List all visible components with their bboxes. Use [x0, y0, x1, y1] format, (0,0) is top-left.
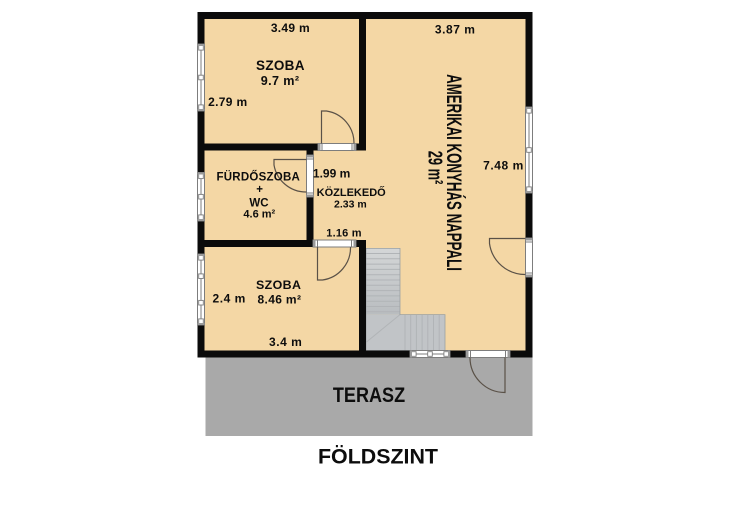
svg-text:3.4 m: 3.4 m — [269, 335, 302, 349]
svg-text:1.16 m: 1.16 m — [326, 227, 361, 239]
svg-text:2.4 m: 2.4 m — [212, 292, 245, 306]
svg-text:3.49 m: 3.49 m — [271, 21, 310, 35]
svg-text:KÖZLEKEDŐ: KÖZLEKEDŐ — [317, 186, 387, 199]
svg-text:4.6 m²: 4.6 m² — [243, 208, 275, 220]
svg-text:2.33 m: 2.33 m — [334, 198, 367, 210]
svg-text:8.46 m²: 8.46 m² — [257, 292, 301, 306]
svg-text:2.79 m: 2.79 m — [208, 95, 247, 109]
svg-text:SZOBA: SZOBA — [256, 58, 305, 73]
svg-text:TERASZ: TERASZ — [333, 383, 405, 407]
svg-text:9.7 m²: 9.7 m² — [261, 74, 300, 88]
svg-text:1.99 m: 1.99 m — [313, 166, 350, 180]
svg-text:FÖLDSZINT: FÖLDSZINT — [318, 443, 438, 468]
svg-text:29 m²: 29 m² — [424, 151, 448, 185]
svg-text:3.87 m: 3.87 m — [435, 22, 476, 36]
svg-text:SZOBA: SZOBA — [256, 278, 301, 292]
svg-text:7.48 m: 7.48 m — [483, 159, 524, 173]
svg-text:FÜRDŐSZOBA: FÜRDŐSZOBA — [216, 170, 300, 183]
svg-text:+: + — [256, 184, 263, 196]
